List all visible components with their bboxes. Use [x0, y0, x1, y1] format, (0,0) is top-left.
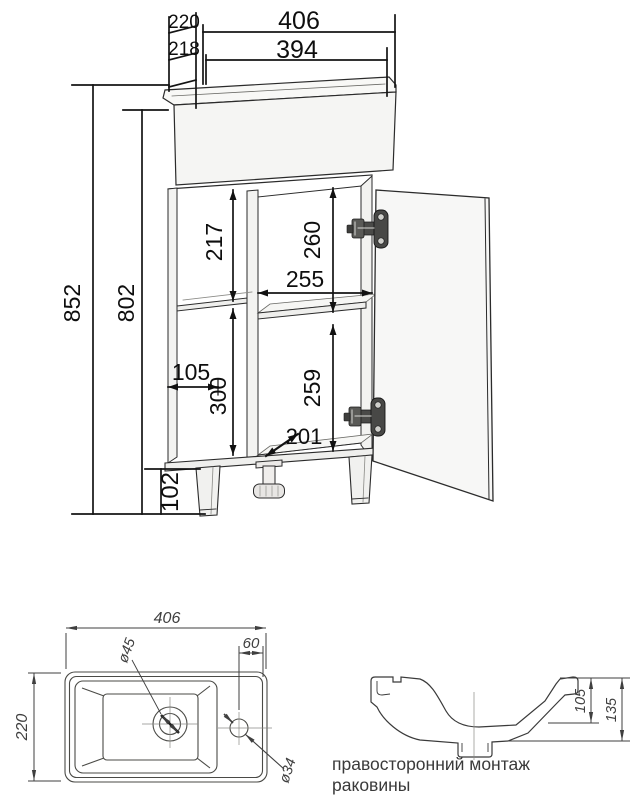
top-view-labels: 406 220 60 ø45 ø34: [14, 610, 300, 785]
left-leg: [196, 466, 220, 516]
dim-width-top: 406: [278, 7, 320, 35]
dim-height-body: 802: [113, 284, 139, 322]
cabinet-door: [373, 190, 493, 501]
dim-width-inner: 394: [276, 36, 318, 64]
washbasin-side-view: 105 135: [371, 677, 630, 760]
top-dim-depth: 220: [14, 714, 31, 742]
dim-upper-left-section: 217: [201, 223, 227, 261]
top-dim-tap-offset: 60: [243, 635, 260, 652]
dim-bottom-depth: 201: [286, 424, 323, 449]
technical-drawing-page: 406 394 220 218 852 802 217 260 255 105 …: [0, 0, 640, 800]
top-dim-width: 406: [154, 610, 181, 627]
dim-upper-right-section: 260: [299, 221, 325, 259]
top-dim-drain: ø45: [115, 635, 139, 665]
dim-lower-right-section: 259: [299, 369, 325, 407]
right-leg: [349, 455, 372, 504]
dim-height-total: 852: [59, 284, 85, 322]
washbasin-front: [174, 92, 396, 185]
washbasin-top-view: 406 220 60 ø45 ø34: [14, 610, 300, 785]
dim-lower-left-section: 300: [205, 377, 231, 415]
dim-opening-width: 255: [286, 266, 324, 292]
side-shelf: [177, 298, 247, 311]
main-cabinet-view: 406 394 220 218 852 802 217 260 255 105 …: [59, 7, 493, 516]
divider-panel-edge: [247, 190, 258, 458]
top-dim-tap-hole: ø34: [277, 756, 300, 785]
left-panel-edge: [168, 188, 177, 463]
basin-inner-edge: [70, 677, 263, 778]
side-dim-basin-depth: 105: [573, 688, 589, 713]
basin-profile: [371, 677, 578, 757]
interior-ceiling-edge: [258, 186, 361, 197]
dim-depth-top: 220: [168, 12, 200, 33]
side-dim-total-depth: 135: [604, 697, 620, 722]
cabinet-body: [163, 77, 493, 516]
basin-floor: [103, 694, 198, 760]
dim-leg-height: 102: [157, 472, 184, 512]
dim-depth-inner: 218: [168, 39, 200, 60]
adjustable-foot: [254, 460, 285, 498]
drawing-canvas: 406 394 220 218 852 802 217 260 255 105 …: [0, 0, 640, 800]
mounting-caption: правосторонний монтаж раковины: [332, 754, 582, 797]
basin-outer-edge: [65, 672, 267, 782]
